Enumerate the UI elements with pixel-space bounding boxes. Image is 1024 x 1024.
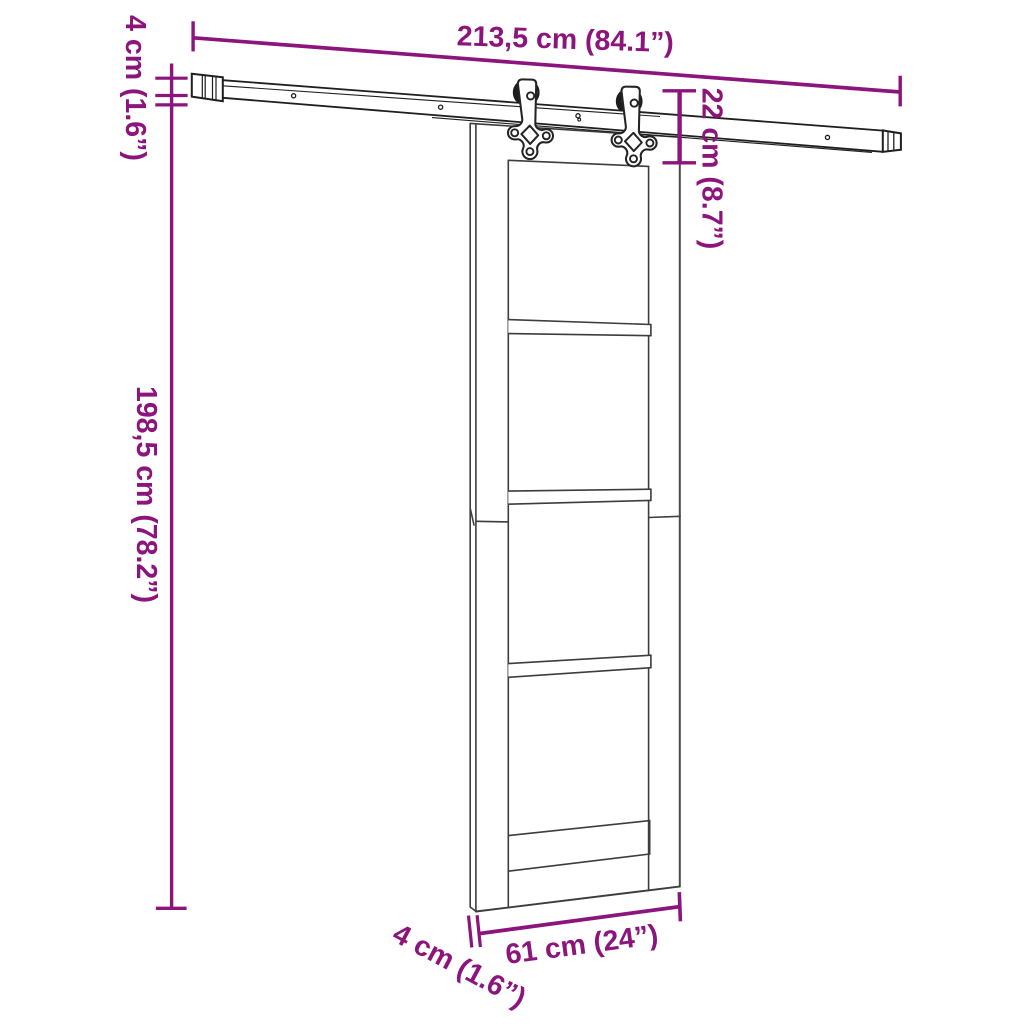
svg-text:213,5 cm (84.1”): 213,5 cm (84.1”)	[456, 20, 674, 59]
svg-text:198,5 cm (78.2”): 198,5 cm (78.2”)	[130, 386, 162, 603]
svg-text:4 cm (1.6”): 4 cm (1.6”)	[119, 15, 151, 161]
svg-text:22 cm (8.7”): 22 cm (8.7”)	[696, 88, 728, 250]
